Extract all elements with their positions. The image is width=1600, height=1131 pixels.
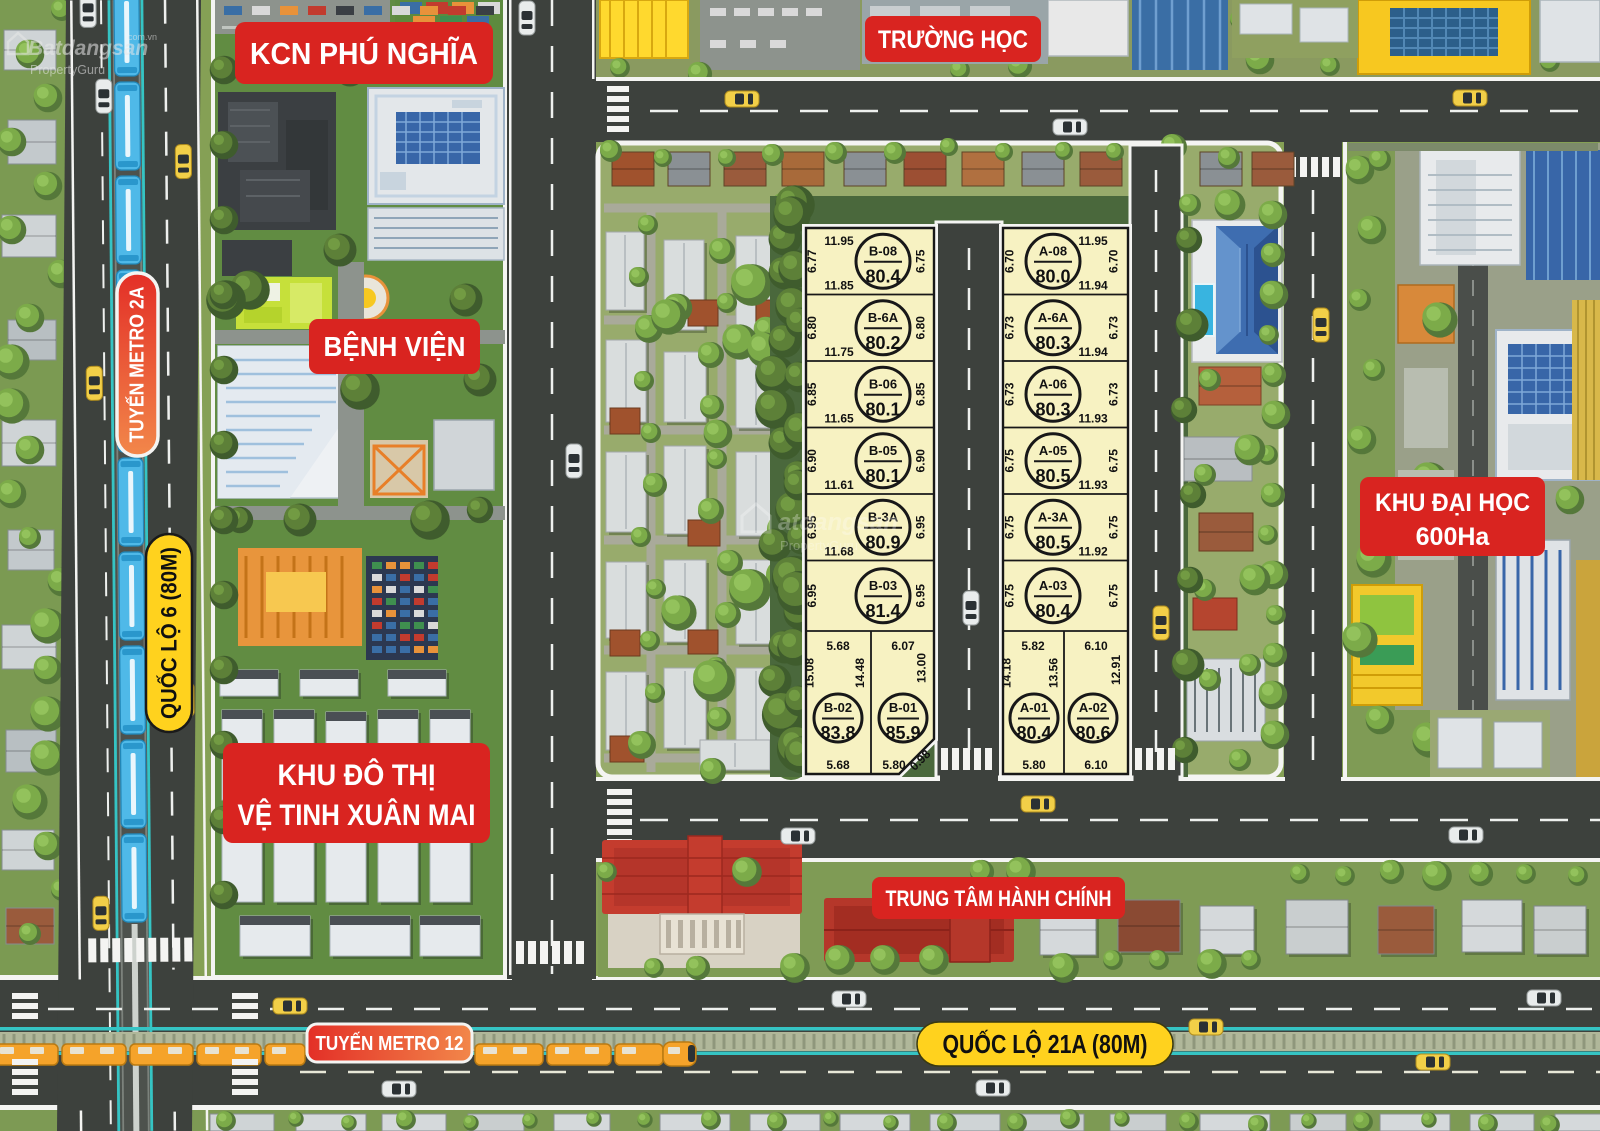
svg-text:B-01: B-01	[889, 700, 917, 715]
svg-text:6.75: 6.75	[1003, 584, 1017, 608]
svg-text:80.3: 80.3	[1035, 399, 1070, 419]
svg-text:A-06: A-06	[1039, 376, 1067, 391]
svg-text:com.vn: com.vn	[128, 32, 157, 42]
svg-text:80.4: 80.4	[865, 266, 900, 286]
svg-text:atdangsan: atdangsan	[778, 509, 898, 536]
svg-text:A-02: A-02	[1079, 700, 1107, 715]
svg-text:A-3A: A-3A	[1038, 509, 1069, 524]
svg-text:6.80: 6.80	[914, 316, 928, 340]
svg-text:6.77: 6.77	[805, 249, 819, 273]
svg-text:B-02: B-02	[824, 700, 852, 715]
svg-text:80.5: 80.5	[1035, 532, 1070, 552]
svg-text:6.90: 6.90	[914, 449, 928, 473]
svg-text:6.10: 6.10	[1084, 758, 1108, 772]
svg-text:6.95: 6.95	[914, 515, 928, 539]
svg-text:80.0: 80.0	[1035, 266, 1070, 286]
svg-text:B-08: B-08	[869, 243, 897, 258]
svg-text:13.56: 13.56	[1047, 658, 1061, 688]
svg-text:QUỐC LỘ 21A (80M): QUỐC LỘ 21A (80M)	[943, 1029, 1148, 1059]
svg-text:11.93: 11.93	[1078, 478, 1108, 492]
svg-text:6.75: 6.75	[1003, 449, 1017, 473]
svg-text:A-05: A-05	[1039, 443, 1067, 458]
svg-text:83.8: 83.8	[820, 723, 855, 743]
svg-text:6.75: 6.75	[1107, 515, 1121, 539]
svg-text:A-01: A-01	[1020, 700, 1048, 715]
svg-text:11.61: 11.61	[824, 478, 854, 492]
svg-text:85.9: 85.9	[885, 723, 920, 743]
svg-text:6.07: 6.07	[891, 639, 915, 653]
svg-text:A-6A: A-6A	[1038, 310, 1069, 325]
svg-text:6.70: 6.70	[1107, 249, 1121, 273]
svg-text:6.73: 6.73	[1107, 382, 1121, 406]
svg-text:A-08: A-08	[1039, 243, 1067, 258]
svg-text:11.95: 11.95	[1078, 234, 1108, 248]
svg-text:6.75: 6.75	[1003, 515, 1017, 539]
svg-text:VỆ TINH XUÂN MAI: VỆ TINH XUÂN MAI	[238, 798, 476, 832]
svg-text:TUYẾN METRO 12: TUYẾN METRO 12	[316, 1032, 464, 1055]
svg-text:11.75: 11.75	[824, 345, 854, 359]
svg-text:PropertyGuru: PropertyGuru	[30, 63, 105, 77]
svg-text:11.85: 11.85	[824, 279, 854, 293]
svg-text:80.5: 80.5	[1035, 466, 1070, 486]
svg-text:6.75: 6.75	[1107, 449, 1121, 473]
svg-text:6.73: 6.73	[1003, 316, 1017, 340]
svg-text:QUỐC LỘ 6 (80M): QUỐC LỘ 6 (80M)	[156, 547, 182, 719]
svg-text:81.4: 81.4	[865, 601, 900, 621]
svg-text:KHU ĐÔ THỊ: KHU ĐÔ THỊ	[278, 758, 436, 792]
svg-text:PropertyGuru: PropertyGuru	[780, 538, 858, 553]
svg-text:TUYẾN METRO 2A: TUYẾN METRO 2A	[126, 287, 149, 443]
svg-text:TRƯỜNG HỌC: TRƯỜNG HỌC	[878, 24, 1028, 54]
svg-text:5.82: 5.82	[1021, 639, 1045, 653]
svg-text:6.95: 6.95	[805, 584, 819, 608]
svg-text:KCN PHÚ NGHĨA: KCN PHÚ NGHĨA	[250, 35, 478, 71]
svg-text:80.3: 80.3	[1035, 333, 1070, 353]
svg-text:600Ha: 600Ha	[1416, 523, 1491, 551]
svg-text:11.95: 11.95	[824, 234, 854, 248]
svg-text:5.80: 5.80	[1022, 758, 1046, 772]
svg-text:80.4: 80.4	[1016, 723, 1051, 743]
svg-text:14.18: 14.18	[1000, 658, 1014, 688]
svg-text:TRUNG TÂM HÀNH CHÍNH: TRUNG TÂM HÀNH CHÍNH	[886, 886, 1112, 911]
svg-text:6.95: 6.95	[914, 584, 928, 608]
svg-text:A-03: A-03	[1039, 578, 1067, 593]
svg-text:80.2: 80.2	[865, 333, 900, 353]
svg-text:BỆNH VIỆN: BỆNH VIỆN	[324, 331, 466, 362]
svg-text:6.73: 6.73	[1003, 382, 1017, 406]
svg-text:80.6: 80.6	[1075, 723, 1110, 743]
svg-text:6.75: 6.75	[914, 249, 928, 273]
svg-text:B-06: B-06	[869, 376, 897, 391]
svg-text:11.92: 11.92	[1078, 545, 1108, 559]
svg-text:B-6A: B-6A	[868, 310, 899, 325]
svg-text:B-03: B-03	[869, 578, 897, 593]
svg-text:80.1: 80.1	[865, 466, 900, 486]
svg-text:6.70: 6.70	[1003, 249, 1017, 273]
svg-text:80.4: 80.4	[1035, 601, 1070, 621]
svg-text:14.48: 14.48	[853, 658, 867, 688]
svg-text:15.08: 15.08	[803, 658, 817, 688]
svg-text:5.80: 5.80	[882, 758, 906, 772]
svg-text:B-05: B-05	[869, 443, 897, 458]
svg-text:5.68: 5.68	[826, 639, 850, 653]
svg-text:13.00: 13.00	[915, 653, 929, 683]
svg-text:6.85: 6.85	[914, 382, 928, 406]
svg-text:80.1: 80.1	[865, 399, 900, 419]
svg-text:KHU ĐẠI HỌC: KHU ĐẠI HỌC	[1375, 489, 1530, 517]
svg-text:6.80: 6.80	[805, 316, 819, 340]
svg-text:5.68: 5.68	[826, 758, 850, 772]
svg-text:6.75: 6.75	[1107, 584, 1121, 608]
svg-text:11.65: 11.65	[824, 412, 854, 426]
svg-text:6.10: 6.10	[1084, 639, 1108, 653]
svg-text:11.93: 11.93	[1078, 412, 1108, 426]
svg-text:6.90: 6.90	[805, 449, 819, 473]
svg-text:11.94: 11.94	[1078, 345, 1108, 359]
svg-text:12.91: 12.91	[1109, 655, 1123, 685]
svg-text:11.94: 11.94	[1078, 279, 1108, 293]
svg-text:6.73: 6.73	[1107, 316, 1121, 340]
svg-text:6.85: 6.85	[805, 382, 819, 406]
